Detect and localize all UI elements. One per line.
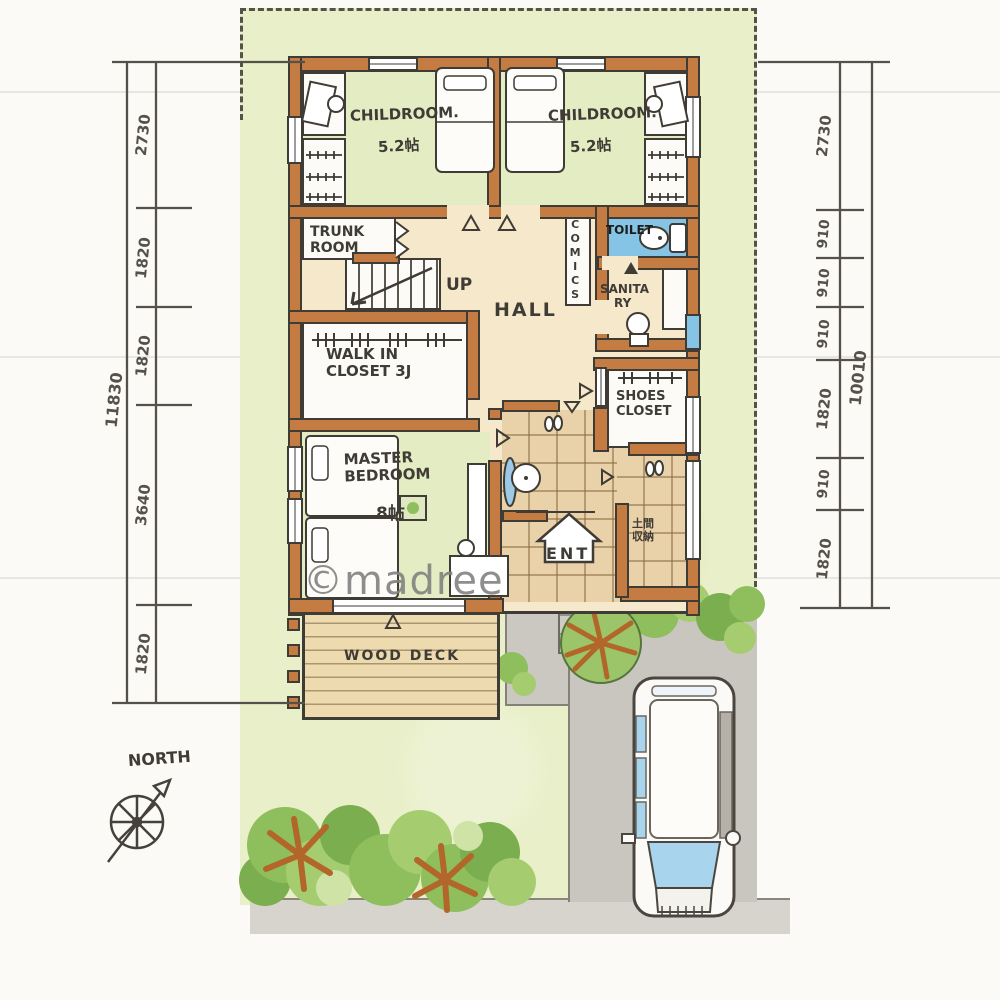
window-east-3 — [685, 460, 701, 560]
desk-alcove-left — [302, 72, 346, 136]
door-gap-toilet — [602, 256, 638, 270]
master-bedroom-size: 8帖 — [376, 505, 405, 525]
floor-plan-page: CHILDROOM. 5.2帖 CHILDROOM. 5.2帖 TRUNK RO… — [0, 0, 1000, 1000]
wall-genkan-step — [502, 510, 548, 522]
closet-left — [302, 138, 346, 205]
site-boundary-right — [754, 8, 757, 596]
dim-right-5: 910 — [815, 469, 834, 500]
shoes-closet-label: SHOES CLOSET — [616, 390, 672, 420]
dim-right-4: 1820 — [813, 387, 835, 430]
door-east-sanitary — [685, 314, 701, 350]
wall-shoes-stub — [593, 407, 609, 452]
wall-doma-west — [615, 503, 629, 598]
stairs-up-label: UP — [446, 276, 472, 296]
shoes-sliding-door — [595, 367, 607, 407]
window-north-2 — [556, 57, 606, 71]
compass-rose — [108, 780, 170, 862]
sanitary-label: SANITA RY — [600, 283, 649, 311]
comics-label: COMICS — [568, 218, 581, 302]
wood-deck — [302, 612, 500, 720]
dim-right-0: 2730 — [813, 114, 835, 157]
walk-in-closet-label: WALK IN CLOSET 3J — [326, 346, 411, 381]
dim-left-1: 1820 — [132, 236, 154, 279]
north-label: NORTH — [127, 748, 191, 771]
window-west-3 — [287, 498, 303, 544]
staircase — [345, 258, 441, 310]
dim-left-4: 1820 — [132, 632, 154, 675]
site-boundary-left — [240, 8, 243, 120]
doma-storage-label: 土間 収納 — [632, 518, 654, 543]
dim-right-2: 910 — [815, 268, 834, 299]
dim-right-3: 910 — [815, 319, 834, 350]
deck-post — [287, 696, 300, 709]
childroom-right-size: 5.2帖 — [570, 137, 612, 156]
wall-childrooms-south — [288, 205, 700, 219]
master-bedroom-label: MASTER BEDROOM — [343, 449, 430, 486]
site-boundary-top — [240, 8, 757, 11]
trunk-room-label: TRUNK ROOM — [310, 224, 364, 256]
sidewalk — [250, 898, 790, 934]
deck-post — [287, 644, 300, 657]
wood-deck-label: WOOD DECK — [344, 648, 460, 664]
entrance-label: ENT — [546, 545, 590, 563]
window-east-2 — [685, 396, 701, 454]
wall-childroom-divider — [487, 56, 501, 219]
wall-ent-north — [502, 400, 560, 412]
door-gap-childroom-left — [447, 205, 489, 219]
toilet-label: TOILET — [606, 224, 653, 238]
wall-ent-stub — [488, 408, 502, 420]
dim-left-2: 1820 — [132, 334, 154, 377]
hall-label: HALL — [494, 300, 557, 322]
closet-right — [644, 138, 688, 205]
wall-south-doma — [620, 586, 700, 602]
dim-right-6: 1820 — [813, 537, 835, 580]
driveway — [568, 638, 757, 902]
dim-left-3: 3640 — [132, 483, 154, 526]
window-west-2 — [287, 446, 303, 492]
window-east-1 — [685, 96, 701, 158]
dim-left-0: 2730 — [132, 113, 154, 156]
window-west-1 — [287, 116, 303, 164]
wall-wic-north — [288, 310, 480, 324]
window-north-1 — [368, 57, 418, 71]
childroom-left-size: 5.2帖 — [378, 137, 420, 156]
dim-right-1: 910 — [815, 219, 834, 250]
dim-left-total: 11830 — [102, 371, 127, 428]
door-gap-childroom-right — [501, 205, 540, 219]
watermark: ©madree — [303, 558, 504, 604]
wall-shoes-north — [593, 357, 700, 371]
deck-post — [287, 670, 300, 683]
wall-wic-east — [466, 310, 480, 400]
wall-wic-south — [288, 418, 480, 432]
deck-post — [287, 618, 300, 631]
